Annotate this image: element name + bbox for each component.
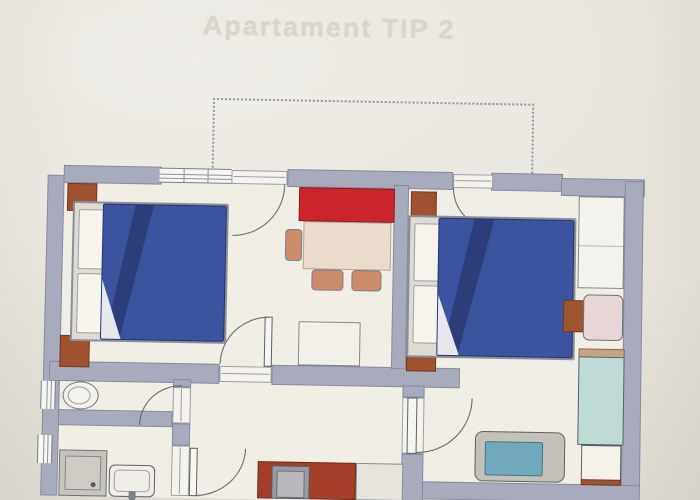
wall-hall-mid <box>172 423 191 445</box>
paper-sheet: Apartament TIP 2 <box>0 0 700 500</box>
pillow-bedroom2-bottom <box>412 285 439 344</box>
nightstand-bedroom2-top <box>411 191 437 217</box>
plan-title: Apartament TIP 2 <box>120 9 539 52</box>
chair-bottom-2 <box>351 270 381 292</box>
chair-left <box>285 229 303 261</box>
single-bed-footboard <box>581 479 621 486</box>
wardrobe <box>577 196 624 289</box>
faucet-icon <box>128 491 135 500</box>
window-bathroom <box>37 435 53 463</box>
window-bedroom1 <box>159 168 231 184</box>
sink <box>108 464 155 497</box>
shower-tray <box>58 449 107 496</box>
wall-top-a <box>64 165 162 185</box>
single-bed-pillow <box>581 445 622 482</box>
wall-top-c <box>491 173 563 192</box>
armchair <box>583 294 624 341</box>
wall-kitchen-bedroom2-top <box>402 385 424 397</box>
stove-unit <box>271 465 310 499</box>
sideboard <box>298 321 361 366</box>
threshold-living-hall <box>219 366 271 383</box>
wall-kitchen-bedroom2-bottom <box>401 454 424 500</box>
chair-bottom-1 <box>311 269 343 291</box>
threshold-balcony-living <box>231 170 287 185</box>
floor-plan-photo: Apartament TIP 2 <box>0 0 700 500</box>
pillow-bedroom2-top <box>413 223 440 281</box>
dining-table <box>303 221 392 271</box>
threshold-balcony-bedroom2 <box>453 174 493 189</box>
bench-cushion <box>484 441 543 476</box>
sofa <box>299 187 396 223</box>
window-wc <box>40 381 56 409</box>
bed-cover-bedroom2 <box>436 218 574 359</box>
single-bed-cover <box>577 356 624 445</box>
bed-cover-bedroom1 <box>100 204 227 342</box>
threshold-kitchen <box>171 445 190 496</box>
counter-unit <box>355 463 403 500</box>
